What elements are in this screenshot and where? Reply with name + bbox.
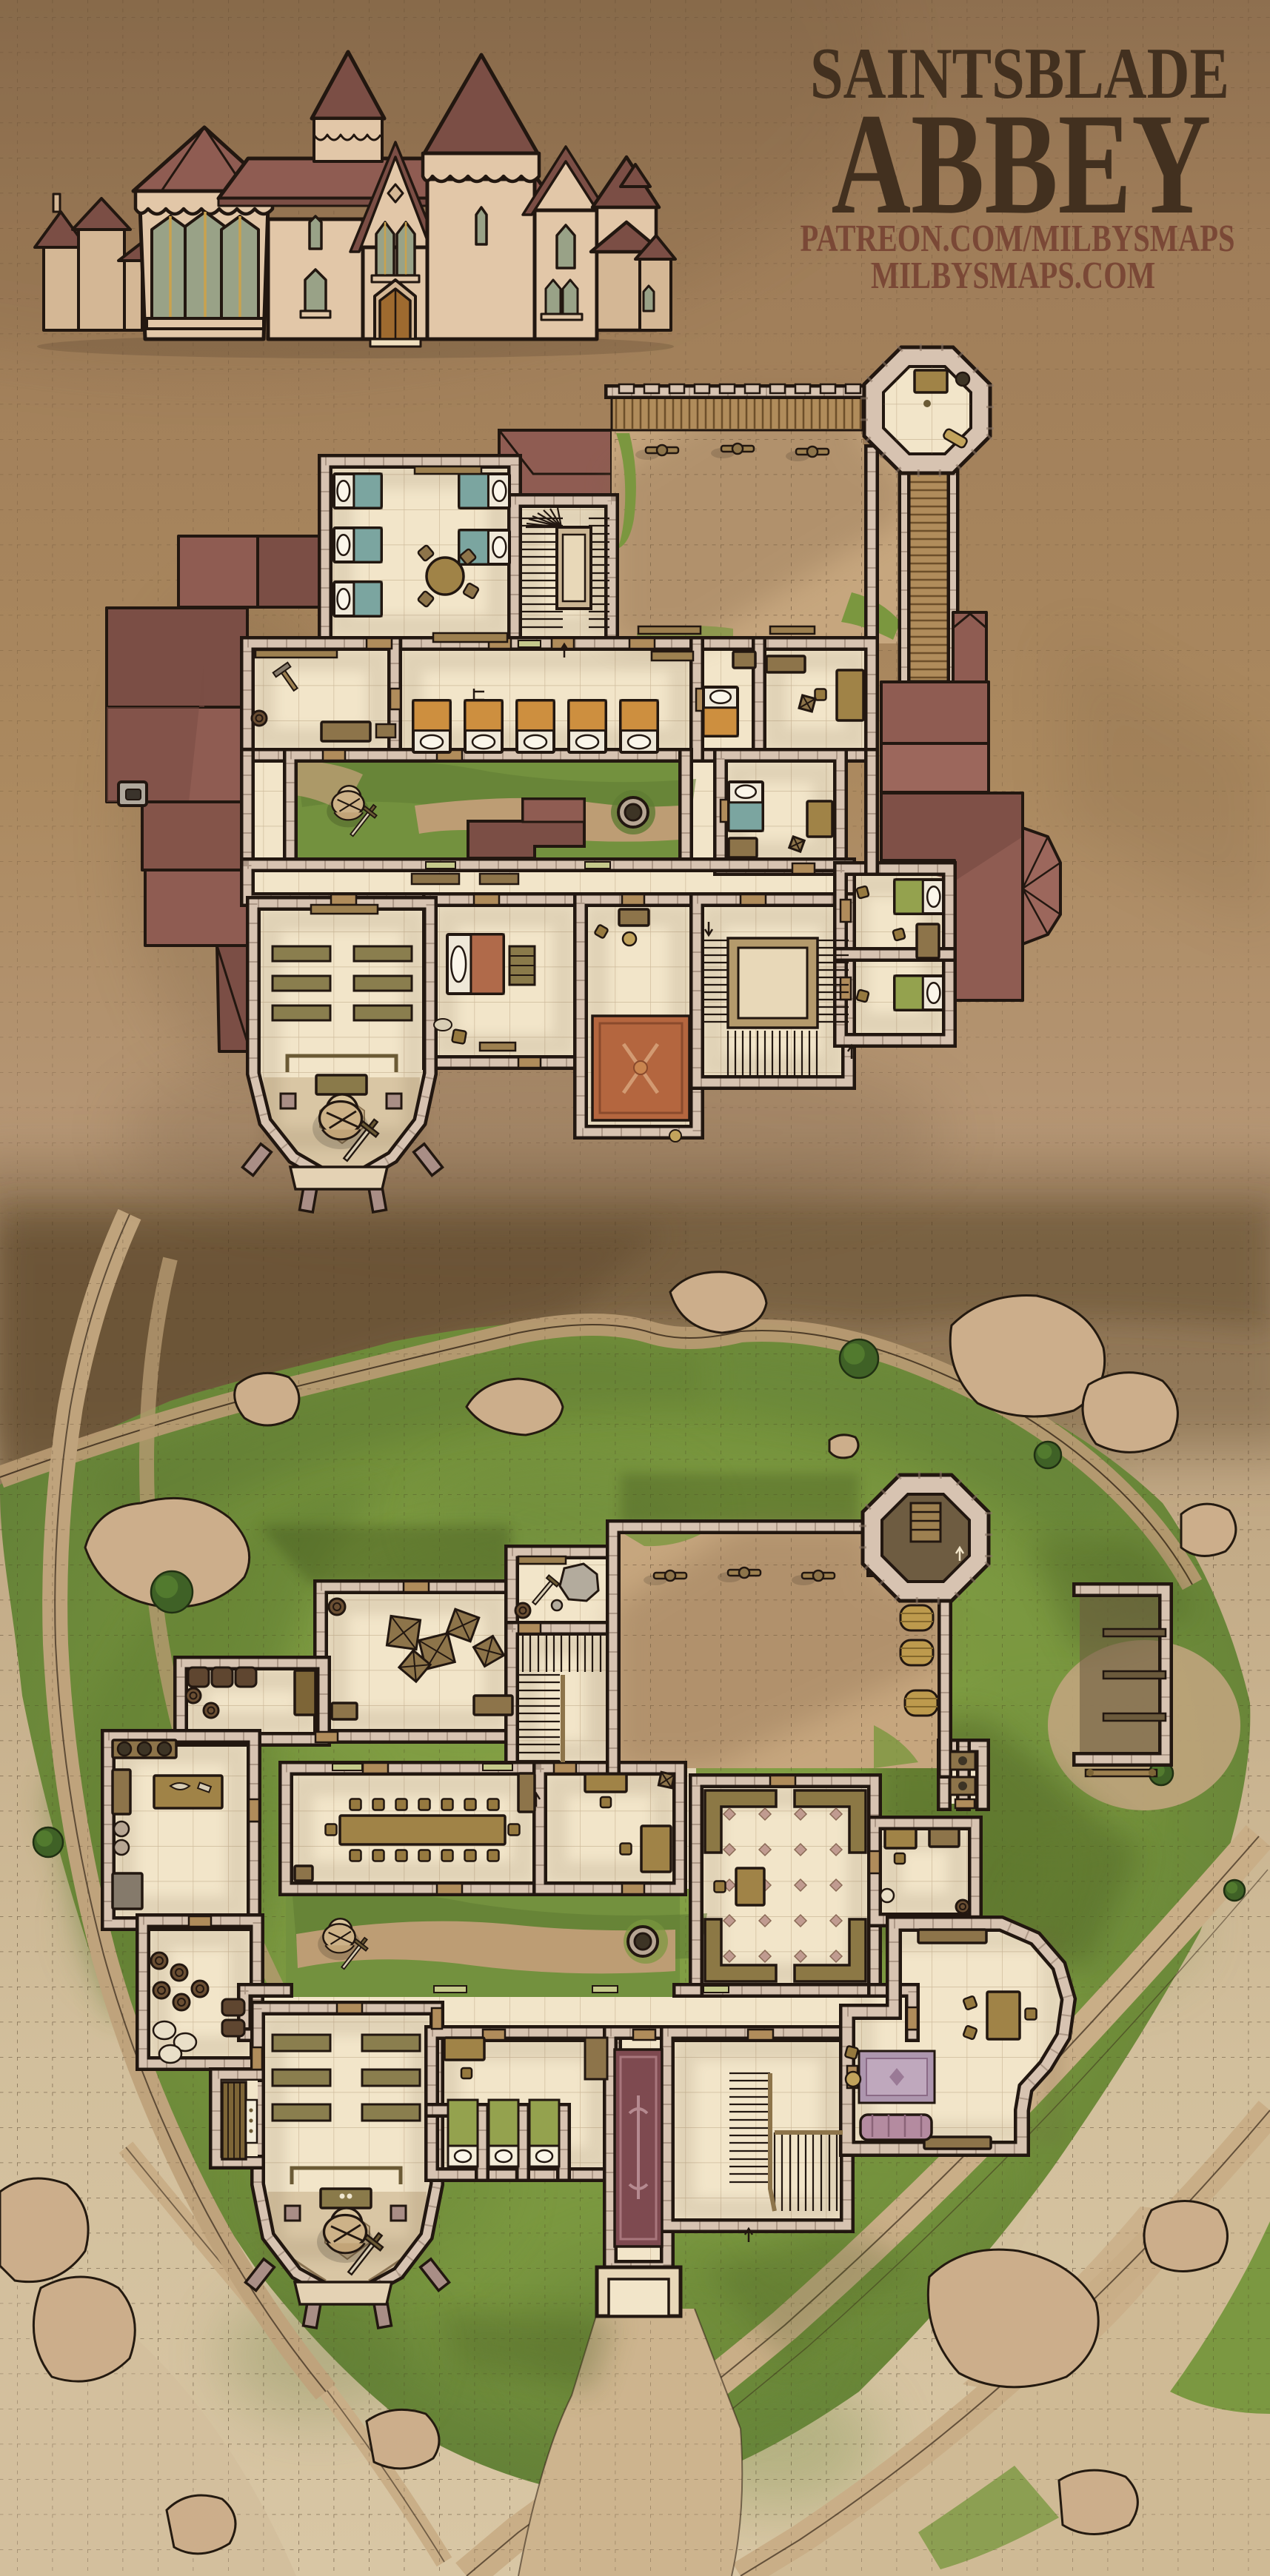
svg-text:PATREON.COM/MILBYSMAPS: PATREON.COM/MILBYSMAPS (801, 218, 1235, 260)
svg-text:MILBYSMAPS.COM: MILBYSMAPS.COM (871, 255, 1155, 297)
